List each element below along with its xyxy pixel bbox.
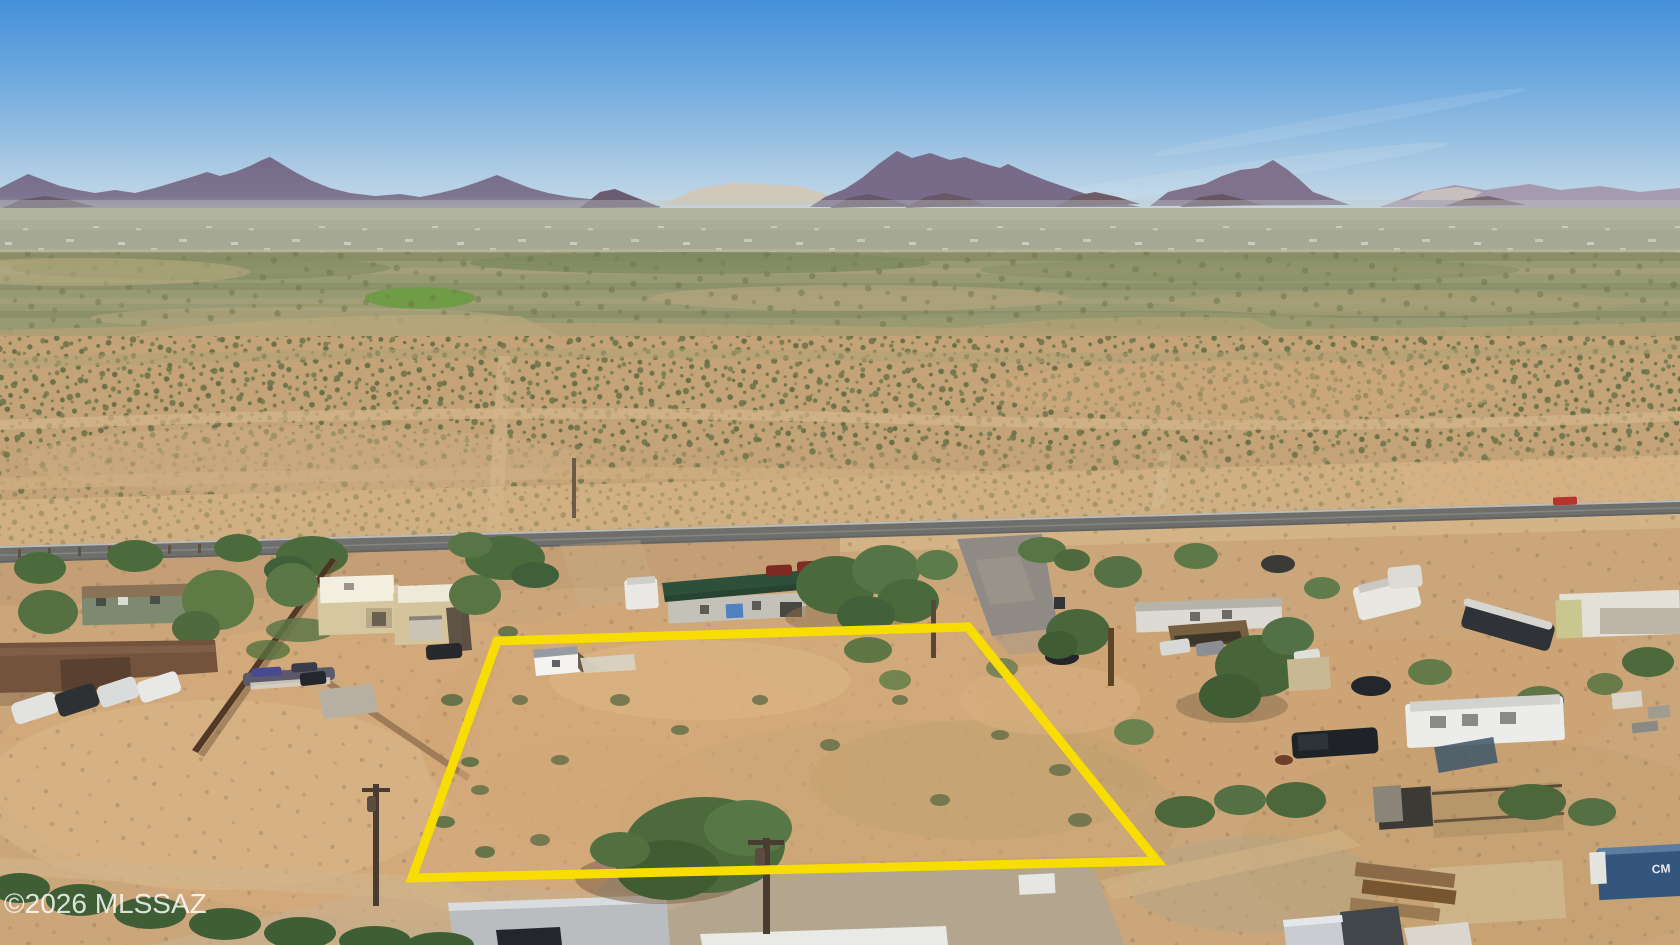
svg-text:CM: CM — [1651, 861, 1670, 876]
svg-text:©2026 MLSSAZ: ©2026 MLSSAZ — [4, 888, 207, 919]
